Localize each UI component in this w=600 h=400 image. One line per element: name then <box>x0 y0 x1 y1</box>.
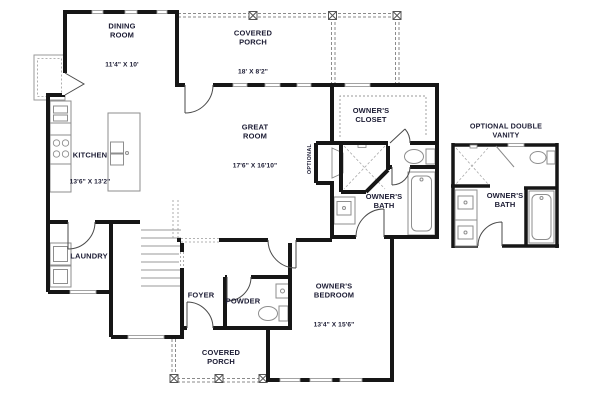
powder-name: POWDER <box>226 297 261 306</box>
kitchen-dims: 13'6" X 13'2" <box>70 179 111 186</box>
detail-double-vanity <box>455 190 477 246</box>
stairs <box>141 230 181 286</box>
powder-sink <box>276 284 289 298</box>
detail-owners-bath-name: OWNER'S BATH <box>487 191 524 209</box>
detail-bathtub <box>529 191 554 243</box>
owners-bedroom-dims: 13'4" X 15'6" <box>314 322 355 329</box>
kitchen-counter <box>50 101 71 192</box>
kitchen-name: KITCHEN <box>70 151 111 160</box>
porch-top-name: COVERED PORCH <box>234 29 272 47</box>
room-label-laundry: LAUNDRY <box>70 234 107 279</box>
room-label-owners-closet: OWNER'S CLOSET <box>353 88 390 142</box>
detail-room-label-owners-bath: OWNER'S BATH <box>487 173 524 227</box>
room-label-kitchen: KITCHEN 13'6" X 13'2" <box>70 133 111 204</box>
owners-bedroom-name: OWNER'S BEDROOM <box>314 282 355 300</box>
foyer-name: FOYER <box>188 291 215 300</box>
owners-closet-name: OWNER'S CLOSET <box>353 106 390 124</box>
porch-bottom-name: COVERED PORCH <box>202 348 240 366</box>
dining-dims: 11'4" X 10' <box>105 62 138 69</box>
room-label-foyer: FOYER <box>188 273 215 318</box>
detail-title-text: OPTIONAL DOUBLE VANITY <box>459 122 553 139</box>
room-label-owners-bedroom: OWNER'S BEDROOM 13'4" X 15'6" <box>314 264 355 347</box>
bathtub <box>408 172 435 235</box>
room-label-dining: DINING ROOM 11'4" X 10' <box>105 4 138 87</box>
detail-title: OPTIONAL DOUBLE VANITY <box>459 104 553 157</box>
great-room-name: GREAT ROOM <box>233 123 278 141</box>
dining-name: DINING ROOM <box>105 22 138 40</box>
room-label-covered-porch-top: COVERED PORCH 18' X 8'2" <box>234 11 272 94</box>
room-label-covered-porch-bottom: COVERED PORCH <box>202 330 240 384</box>
fireplace-optional-note: OPTIONAL <box>289 144 331 174</box>
porch-top-dims: 18' X 8'2" <box>234 69 272 76</box>
powder-toilet <box>259 306 289 321</box>
great-room-dims: 17'6" X 16'10" <box>233 163 278 170</box>
bath-vanity <box>334 197 355 224</box>
laundry-name: LAUNDRY <box>70 252 107 261</box>
owners-bath-name: OWNER'S BATH <box>366 192 403 210</box>
floor-plan: DINING ROOM 11'4" X 10' COVERED PORCH 18… <box>0 0 600 400</box>
top-porch-outline <box>178 14 399 84</box>
room-label-great-room: GREAT ROOM 17'6" X 16'10" <box>233 105 278 188</box>
room-label-owners-bath: OWNER'S BATH <box>366 174 403 228</box>
fireplace-note-text: OPTIONAL <box>307 144 313 174</box>
room-label-powder: POWDER <box>226 279 261 324</box>
washer-dryer <box>50 243 71 287</box>
kitchen-island <box>108 113 140 191</box>
suite-toilet <box>405 149 436 164</box>
